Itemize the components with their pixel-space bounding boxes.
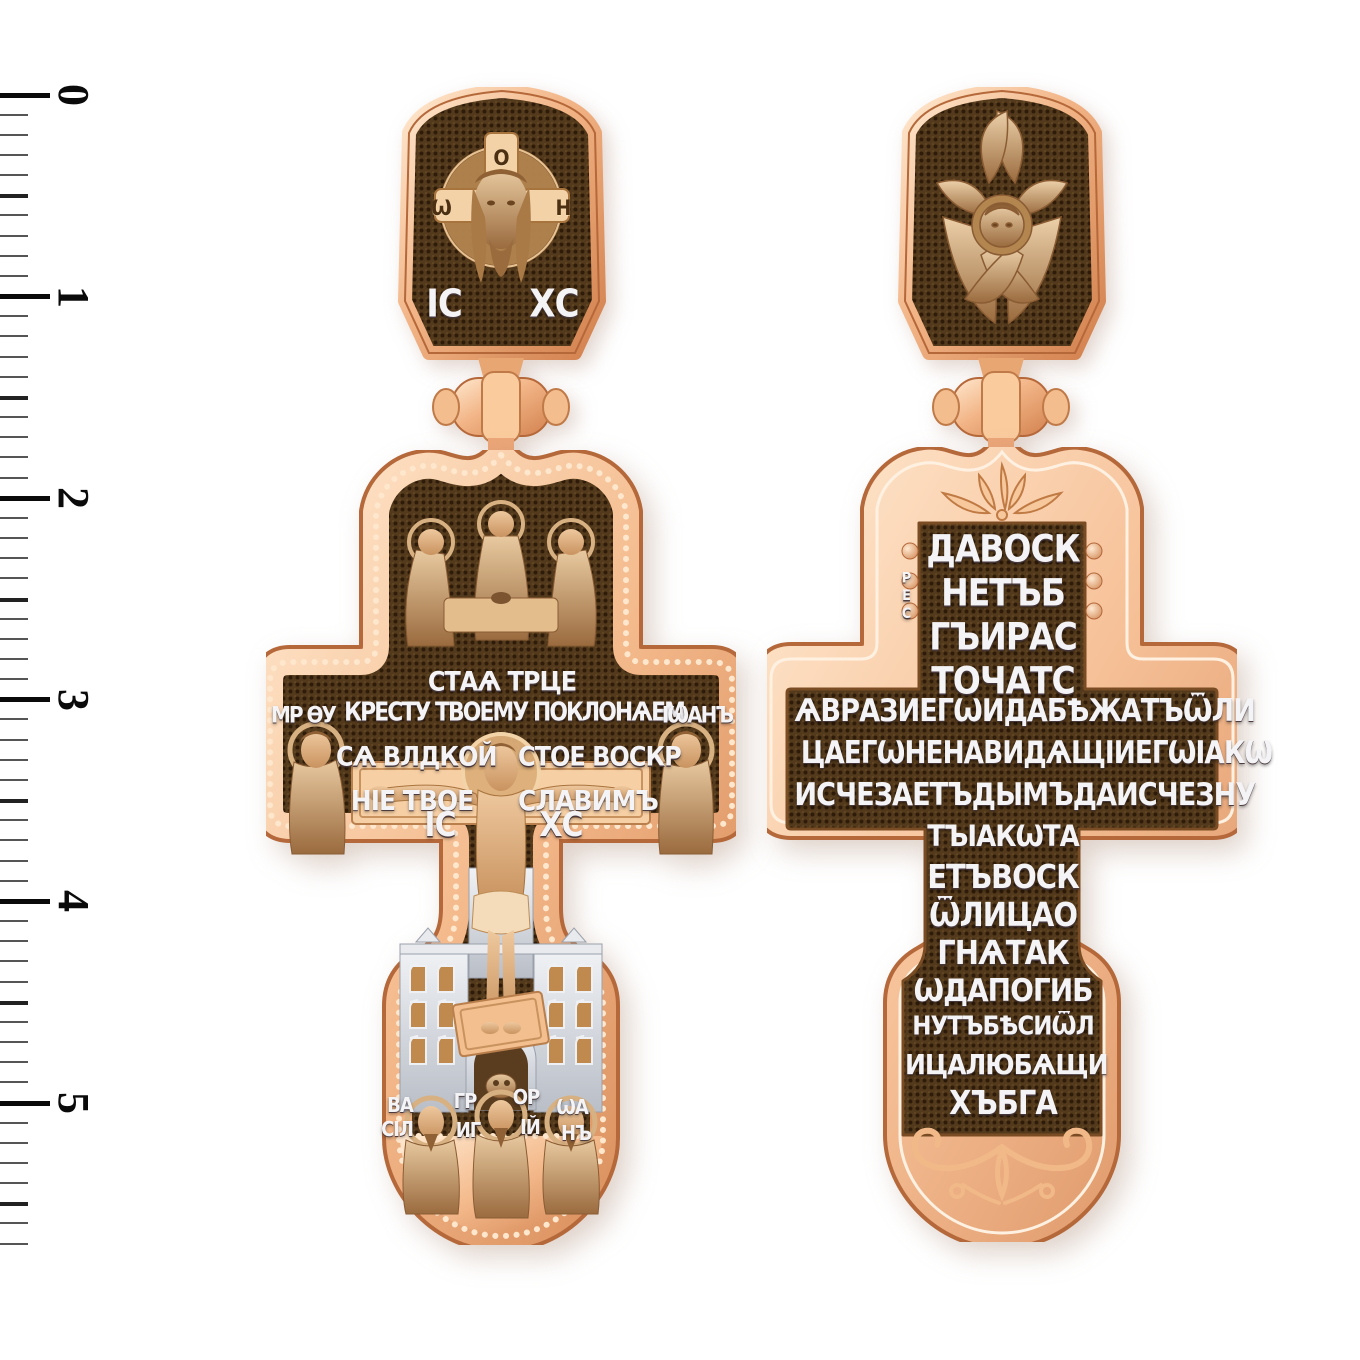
ruler-tick — [0, 598, 28, 602]
bail-halo-letter-right: Н — [548, 196, 578, 221]
ruler-tick — [0, 618, 28, 620]
bail-xc-monogram: ХС — [524, 282, 584, 327]
saint-label: ВА — [380, 1094, 420, 1118]
saint-label: ІЙ — [511, 1116, 549, 1140]
john-label: ІѠАНЪ — [660, 701, 734, 728]
ruler-tick — [0, 697, 50, 702]
ruler-tick — [0, 799, 28, 803]
ruler-tick — [0, 1222, 28, 1224]
ruler-tick — [0, 899, 50, 904]
ruler-tick — [0, 940, 28, 942]
ruler-label-5: 5 — [50, 1079, 98, 1127]
ruler-label-1: 1 — [50, 273, 98, 321]
back-hinge — [926, 358, 1076, 460]
front-prayer-line1: КРЕСТУ ТВОЕМУ ПОКЛОНѦЕМ — [344, 698, 653, 727]
front-xc-monogram: ХС — [536, 806, 586, 845]
ruler-tick — [0, 658, 28, 660]
ruler-tick — [0, 456, 28, 458]
ruler-tick — [0, 678, 28, 680]
bail-halo-letter-top: О — [488, 146, 514, 171]
ruler-tick — [0, 1243, 28, 1245]
back-prayer-line: НЕТЪБ — [913, 571, 1093, 615]
back-bail — [897, 87, 1107, 372]
saint-label: СІЛ — [375, 1118, 419, 1142]
ruler-tick — [0, 93, 50, 98]
ruler-tick — [0, 1122, 28, 1124]
back-prayer-line: ИЦАЛЮБѦЩИ — [905, 1048, 1101, 1080]
back-prayer-line: ХЪБГА — [915, 1084, 1091, 1122]
back-prayer-line: ЦАЕГѠНЕНАВИДѦЩІИЕГѠІАКѠ — [801, 734, 1203, 771]
ruler-tick — [0, 275, 28, 277]
back-prayer-line: ИСЧЕЗАЕТЪДЫМЪДАИСЧЕЗНУ — [794, 776, 1209, 813]
ruler-tick — [0, 920, 28, 922]
back-prayer-line: ДАВОСК — [913, 527, 1093, 571]
product-photo-stage: 012345 — [0, 0, 1360, 1360]
ruler-tick — [0, 376, 28, 378]
ruler-label-3: 3 — [50, 676, 98, 724]
ruler-tick — [0, 1061, 28, 1063]
ruler-tick — [0, 194, 28, 198]
ruler-tick — [0, 557, 28, 559]
ruler-tick — [0, 517, 28, 519]
ruler-label-2: 2 — [50, 474, 98, 522]
ruler-tick — [0, 114, 28, 116]
front-bail — [397, 87, 607, 372]
ruler-tick — [0, 860, 28, 862]
front-cross — [266, 450, 736, 1245]
theotokos-monogram: МР ѲУ — [271, 701, 335, 728]
ruler-tick — [0, 577, 28, 579]
ruler-tick — [0, 1202, 28, 1206]
ruler-tick — [0, 134, 28, 136]
ruler-tick — [0, 759, 28, 761]
ruler-tick — [0, 537, 28, 539]
ruler-label-4: 4 — [50, 877, 98, 925]
back-prayer-line: ГНѦТАК — [915, 934, 1091, 972]
back-prayer-line: ЕТЪВОСК — [915, 858, 1091, 896]
front-prayer-line2-right: СТОЕ ВОСКР — [518, 741, 668, 772]
back-prayer-line: ГЪИРАС — [913, 615, 1093, 659]
ruler-tick — [0, 1142, 28, 1144]
ruler-tick — [0, 839, 28, 841]
ruler-tick — [0, 638, 28, 640]
ruler-tick — [0, 174, 28, 176]
ruler-tick — [0, 356, 28, 358]
ruler-tick — [0, 1081, 28, 1083]
saint-label: НЪ — [556, 1122, 596, 1146]
saint-label: ГР — [446, 1090, 484, 1114]
saint-label: ОР — [507, 1086, 545, 1110]
ruler-tick — [0, 960, 28, 962]
back-prayer-line: НУТЪБѢСИѾЛ — [903, 1012, 1103, 1041]
saint-label: ѠА — [551, 1096, 593, 1120]
front-hinge — [426, 358, 576, 460]
front-title: СТАѦ ТРЦЕ — [418, 666, 586, 697]
back-prayer-line: ТЪІАКѠТА — [915, 820, 1091, 854]
ruler-tick — [0, 718, 28, 720]
ruler-tick — [0, 255, 28, 257]
ruler-tick — [0, 1101, 50, 1106]
ruler-tick — [0, 1021, 28, 1023]
ruler-tick — [0, 496, 50, 501]
back-prayer-vertical: РЕС — [899, 570, 914, 624]
ruler-tick — [0, 294, 50, 299]
ruler-tick — [0, 335, 28, 337]
bail-halo-letter-left: Ѡ — [426, 196, 456, 221]
ruler-tick — [0, 416, 28, 418]
ruler-tick — [0, 235, 28, 237]
saint-label: ИГ — [449, 1119, 487, 1143]
ruler-label-0: 0 — [50, 71, 98, 119]
ruler-tick — [0, 315, 28, 317]
ruler-tick — [0, 214, 28, 216]
back-prayer-line: ѾЛИЦАО — [915, 896, 1091, 934]
ruler-tick — [0, 1041, 28, 1043]
ruler-tick — [0, 154, 28, 156]
ruler-tick — [0, 1182, 28, 1184]
back-prayer-line: ѠДАПОГИБ — [905, 972, 1101, 1009]
ruler-tick — [0, 396, 28, 400]
ruler-tick — [0, 981, 28, 983]
ruler-tick — [0, 819, 28, 821]
front-prayer-line2-left: СѦ ВЛДКОЙ — [336, 741, 480, 772]
back-prayer-line: ѦВРАЗИЕГѠИДАБѢЖАТЪѾЛИ — [794, 692, 1209, 729]
ruler-tick — [0, 1162, 28, 1164]
ruler-tick — [0, 880, 28, 882]
ruler-tick — [0, 436, 28, 438]
bail-ic-monogram: ІС — [416, 282, 472, 327]
ruler-tick — [0, 477, 28, 479]
front-ic-monogram: ІС — [415, 806, 465, 845]
ruler-tick — [0, 779, 28, 781]
ruler-tick — [0, 739, 28, 741]
ruler-tick — [0, 1001, 28, 1005]
